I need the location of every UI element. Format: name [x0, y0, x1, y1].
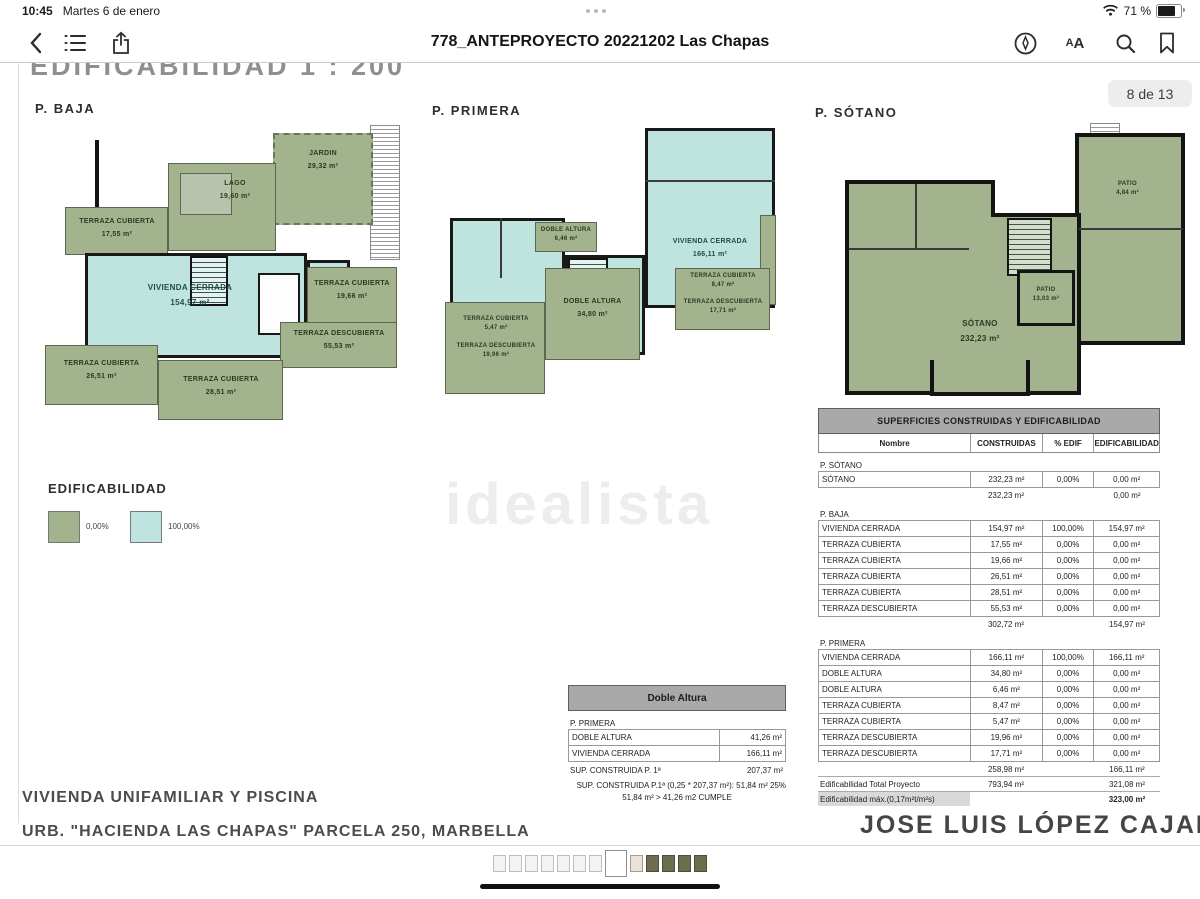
watermark: idealista [445, 471, 713, 538]
table-cell: 41,26 m² [720, 733, 785, 742]
table-cell: 166,11 m² [970, 650, 1042, 665]
table-cell [818, 488, 970, 502]
room-label: TERRAZA DESCUBIERTA19,96 m² [452, 342, 540, 360]
table-cell: 0,00% [1042, 746, 1094, 761]
table-cell: 26,51 m² [970, 569, 1042, 584]
table-cell: 323,00 m² [1094, 792, 1160, 806]
table-cell: 0,00% [1042, 682, 1094, 697]
doble-altura-table-title: Doble Altura [568, 685, 786, 711]
table-cell: VIVIENDA CERRADA [569, 746, 720, 761]
table-cell: TERRAZA CUBIERTA [819, 553, 970, 568]
room-label: TERRAZA DESCUBIERTA17,71 m² [678, 298, 768, 316]
bookmark-button[interactable] [1154, 30, 1180, 56]
table-cell: Edificabilidad máx.(0,17m²t/m²s) [818, 792, 970, 806]
legend-swatch-cyan [130, 511, 162, 543]
project-subtitle: URB. "HACIENDA LAS CHAPAS" PARCELA 250, … [22, 823, 530, 840]
search-button[interactable] [1112, 30, 1138, 56]
room-label: TERRAZA CUBIERTA5,47 m² [452, 315, 540, 333]
table-cell: 0,00% [1042, 472, 1094, 487]
table-cell: 0,00 m² [1093, 601, 1159, 616]
table-cell: 793,94 m² [970, 777, 1042, 791]
table-cell: SÓTANO [819, 472, 970, 487]
table-cell [970, 792, 1042, 806]
table-cell: 0,00% [1042, 730, 1094, 745]
page-edge-line [18, 63, 19, 823]
stairs [1007, 218, 1052, 276]
drawing-heading: EDIFICABILIDAD 1 : 200 [30, 63, 405, 82]
table-cell: 28,51 m² [970, 585, 1042, 600]
doble-altura-check-line1: 25% SUP. CONSTRUIDA P.1ª (0,25 * 207,37 … [568, 781, 786, 790]
page-thumbnail[interactable] [646, 855, 659, 872]
status-bar: 10:45Martes 6 de enero 71 % [0, 0, 1200, 22]
room-label: TERRAZA CUBIERTA17,55 m² [68, 215, 166, 242]
table-cell: DOBLE ALTURA [819, 682, 970, 697]
table-cell: 0,00 m² [1093, 746, 1159, 761]
table-cell: 0,00 m² [1093, 714, 1159, 729]
ipad-screen: 10:45Martes 6 de enero 71 % 778_ANTEPROY… [0, 0, 1200, 899]
table-row: TERRAZA CUBIERTA26,51 m²0,00%0,00 m² [818, 568, 1160, 585]
legend-label: 100,00% [168, 522, 200, 531]
table-cell [1042, 777, 1094, 791]
table-cell: 8,47 m² [970, 698, 1042, 713]
room-label: PATIO4,84 m² [1105, 180, 1150, 198]
table-cell: 0,00% [1042, 666, 1094, 681]
table-cell: 34,80 m² [970, 666, 1042, 681]
floor-plan-sotano: SÓTANO232,23 m² PATIO13,03 m² PATIO4,84 … [825, 118, 1175, 398]
battery-percent: 71 % [1124, 4, 1151, 18]
room-label: LAGO19,60 m² [195, 177, 275, 204]
table-cell: DOBLE ALTURA [569, 730, 720, 745]
table-cell: 0,00 m² [1093, 569, 1159, 584]
room-label: TERRAZA CUBIERTA26,51 m² [50, 357, 153, 384]
table-row: TERRAZA CUBIERTA5,47 m²0,00%0,00 m² [818, 713, 1160, 730]
text-settings-button[interactable]: AA [1062, 30, 1088, 56]
table-cell: 5,47 m² [970, 714, 1042, 729]
floor-plan-baja: JARDIN29,32 m² LAGO19,60 m² TERRAZA CUBI… [40, 115, 395, 445]
col-construidas: CONSTRUIDAS [970, 434, 1042, 452]
table-cell: 0,00% [1042, 601, 1094, 616]
table-row: DOBLE ALTURA6,46 m²0,00%0,00 m² [818, 681, 1160, 698]
page-thumbnail[interactable] [573, 855, 586, 872]
page-thumbnail[interactable] [509, 855, 522, 872]
table-cell: 0,00% [1042, 714, 1094, 729]
room-label: JARDIN29,32 m² [280, 147, 366, 174]
table-cell: 0,00% [1042, 698, 1094, 713]
table-cell [1042, 488, 1094, 502]
project-title: VIVIENDA UNIFAMILIAR Y PISCINA [22, 789, 318, 807]
table-cell: 0,00 m² [1093, 537, 1159, 552]
table-cell: 0,00% [1042, 569, 1094, 584]
table-cell: 154,97 m² [970, 521, 1042, 536]
doble-altura-check-line2: 51,84 m² > 41,26 m2 CUMPLE [568, 793, 786, 802]
room-label: TERRAZA CUBIERTA28,51 m² [162, 373, 280, 400]
status-date: Martes 6 de enero [63, 4, 160, 18]
table-cell [1042, 762, 1094, 776]
table-cell: 100,00% [1042, 521, 1094, 536]
table-cell: Edificabilidad Total Proyecto [818, 777, 970, 791]
table-row: TERRAZA DESCUBIERTA17,71 m²0,00%0,00 m² [818, 745, 1160, 762]
table-row: TERRAZA CUBIERTA28,51 m²0,00%0,00 m² [818, 584, 1160, 601]
table-cell: TERRAZA DESCUBIERTA [819, 746, 970, 761]
table-cell: 232,23 m² [970, 488, 1042, 502]
table-cell: 0,00% [1042, 585, 1094, 600]
table-cell: TERRAZA CUBIERTA [819, 585, 970, 600]
table-cell: 0,00 m² [1093, 698, 1159, 713]
room-label: PATIO13,03 m² [1021, 286, 1071, 304]
table-cell: 0,00% [1042, 537, 1094, 552]
page-thumbnail[interactable] [525, 855, 538, 872]
table-cell: VIVIENDA CERRADA [819, 650, 970, 665]
page-thumbnail[interactable] [541, 855, 554, 872]
table-total-row: Edificabilidad Total Proyecto793,94 m²32… [818, 776, 1160, 791]
page-thumbnail[interactable] [589, 855, 602, 872]
page-thumbnail[interactable] [630, 855, 643, 872]
table-cell: TERRAZA CUBIERTA [819, 537, 970, 552]
room-label: TERRAZA CUBIERTA19,66 m² [308, 277, 396, 304]
col-edificabilidad: EDIFICABILIDAD [1093, 434, 1159, 452]
pdf-toolbar: 778_ANTEPROYECTO 20221202 Las Chapas AA [0, 22, 1200, 63]
table-cell: 17,71 m² [970, 746, 1042, 761]
table-cell [1042, 617, 1094, 631]
table-row: TERRAZA CUBIERTA8,47 m²0,00%0,00 m² [818, 697, 1160, 714]
table-cell: 166,11 m² [1093, 650, 1159, 665]
col-pct-edif: % EDIF [1042, 434, 1094, 452]
room-label: VIVIENDA CERRADA154,97 m² [125, 280, 255, 310]
room-label: TERRAZA CUBIERTA8,47 m² [678, 272, 768, 290]
table-cell [818, 762, 970, 776]
surfaces-table: SUPERFICIES CONSTRUIDAS Y EDIFICABILIDAD… [818, 408, 1160, 806]
table-cell: 302,72 m² [970, 617, 1042, 631]
doble-altura-sum-row: SUP. CONSTRUIDA P. 1ª 207,37 m² [568, 762, 786, 778]
sotano-bottom-ext [930, 360, 1030, 396]
page-number-badge: 8 de 13 [1108, 80, 1192, 107]
table-cell [1042, 792, 1094, 806]
table-row: VIVIENDA CERRADA166,11 m²100,00%166,11 m… [818, 649, 1160, 666]
table-cell: 0,00 m² [1093, 666, 1159, 681]
table-row: DOBLE ALTURA34,80 m²0,00%0,00 m² [818, 665, 1160, 682]
page-thumbnail[interactable] [662, 855, 675, 872]
bottom-bar [0, 846, 1200, 899]
col-nombre: Nombre [819, 434, 970, 452]
table-cell: 55,53 m² [970, 601, 1042, 616]
table-cell: 19,66 m² [970, 553, 1042, 568]
plan-baja-title: P. BAJA [35, 101, 95, 116]
table-cell: DOBLE ALTURA [819, 666, 970, 681]
room-label: DOBLE ALTURA6,46 m² [536, 226, 596, 244]
doble-altura-table: Doble Altura P. PRIMERA DOBLE ALTURA41,2… [568, 685, 786, 802]
page-thumbnail[interactable] [605, 850, 627, 877]
markup-button[interactable] [1012, 30, 1038, 56]
page-thumbnail[interactable] [493, 855, 506, 872]
table-cell: 154,97 m² [1094, 617, 1160, 631]
table-cell: 154,97 m² [1093, 521, 1159, 536]
pdf-page[interactable]: EDIFICABILIDAD 1 : 200 8 de 13 idealista… [0, 63, 1200, 846]
floor-plan-primera: DOBLE ALTURA6,46 m² VIVIENDA CERRADA166,… [440, 120, 785, 415]
table-cell: 0,00 m² [1093, 472, 1159, 487]
table-cell: 19,96 m² [970, 730, 1042, 745]
room-label: VIVIENDA CERRADA166,11 m² [655, 235, 765, 262]
sotano-right-block [1075, 133, 1185, 345]
table-cell: 100,00% [1042, 650, 1094, 665]
table-subtotal-row: 232,23 m²0,00 m² [818, 488, 1160, 502]
home-indicator[interactable] [480, 884, 720, 889]
table-cell: TERRAZA CUBIERTA [819, 569, 970, 584]
table-row: TERRAZA DESCUBIERTA55,53 m²0,00%0,00 m² [818, 600, 1160, 617]
page-thumbnail[interactable] [557, 855, 570, 872]
table-row: VIVIENDA CERRADA166,11 m² [568, 745, 786, 762]
status-time-date: 10:45Martes 6 de enero [22, 4, 160, 18]
table-cell: TERRAZA CUBIERTA [819, 698, 970, 713]
table-cell: TERRAZA DESCUBIERTA [819, 601, 970, 616]
room-label: SÓTANO232,23 m² [925, 316, 1035, 346]
room-label: TERRAZA DESCUBIERTA55,53 m² [283, 327, 395, 354]
table-subtotal-row: 258,98 m²166,11 m² [818, 762, 1160, 776]
battery-icon [1156, 4, 1182, 18]
table-row: VIVIENDA CERRADA154,97 m²100,00%154,97 m… [818, 520, 1160, 537]
page-thumbnail[interactable] [694, 855, 707, 872]
legend-label: 0,00% [86, 522, 109, 531]
page-thumbnail[interactable] [678, 855, 691, 872]
table-cell: 0,00% [1042, 553, 1094, 568]
status-time: 10:45 [22, 4, 53, 18]
legend-swatch-green [48, 511, 80, 543]
table-cell: 0,00 m² [1093, 730, 1159, 745]
table-cell: 258,98 m² [970, 762, 1042, 776]
table-cell: 0,00 m² [1093, 553, 1159, 568]
table-cell: 232,23 m² [970, 472, 1042, 487]
table-cell: 6,46 m² [970, 682, 1042, 697]
plan-primera-title: P. PRIMERA [432, 103, 521, 118]
table-cell: 0,00 m² [1093, 585, 1159, 600]
table-cell: 17,55 m² [970, 537, 1042, 552]
table-row: TERRAZA CUBIERTA19,66 m²0,00%0,00 m² [818, 552, 1160, 569]
deck-hatch [370, 125, 400, 260]
surfaces-table-title: SUPERFICIES CONSTRUIDAS Y EDIFICABILIDAD [818, 408, 1160, 434]
architect-name: JOSE LUIS LÓPEZ CAJAL [860, 811, 1200, 840]
multitask-dots-icon[interactable] [586, 9, 606, 13]
page-thumbnail-strip[interactable] [0, 850, 1200, 877]
legend-title: EDIFICABILIDAD [48, 481, 167, 496]
table-cell: 0,00 m² [1094, 488, 1160, 502]
table-cell: 166,11 m² [720, 749, 785, 758]
table-cell: 0,00 m² [1093, 682, 1159, 697]
table-row: TERRAZA DESCUBIERTA19,96 m²0,00%0,00 m² [818, 729, 1160, 746]
room-label: DOBLE ALTURA34,80 m² [550, 295, 635, 322]
table-cell: TERRAZA CUBIERTA [819, 714, 970, 729]
table-cell: VIVIENDA CERRADA [819, 521, 970, 536]
table-cell: TERRAZA DESCUBIERTA [819, 730, 970, 745]
surfaces-table-header: Nombre CONSTRUIDAS % EDIF EDIFICABILIDAD [818, 434, 1160, 453]
table-subtotal-row: 302,72 m²154,97 m² [818, 617, 1160, 631]
table-cell [818, 617, 970, 631]
table-row: TERRAZA CUBIERTA17,55 m²0,00%0,00 m² [818, 536, 1160, 553]
table-row: DOBLE ALTURA41,26 m² [568, 729, 786, 746]
table-total-row: Edificabilidad máx.(0,17m²t/m²s)323,00 m… [818, 791, 1160, 806]
table-cell: 321,08 m² [1094, 777, 1160, 791]
table-row: SÓTANO232,23 m²0,00%0,00 m² [818, 471, 1160, 488]
table-cell: 166,11 m² [1094, 762, 1160, 776]
wifi-icon [1102, 3, 1119, 19]
